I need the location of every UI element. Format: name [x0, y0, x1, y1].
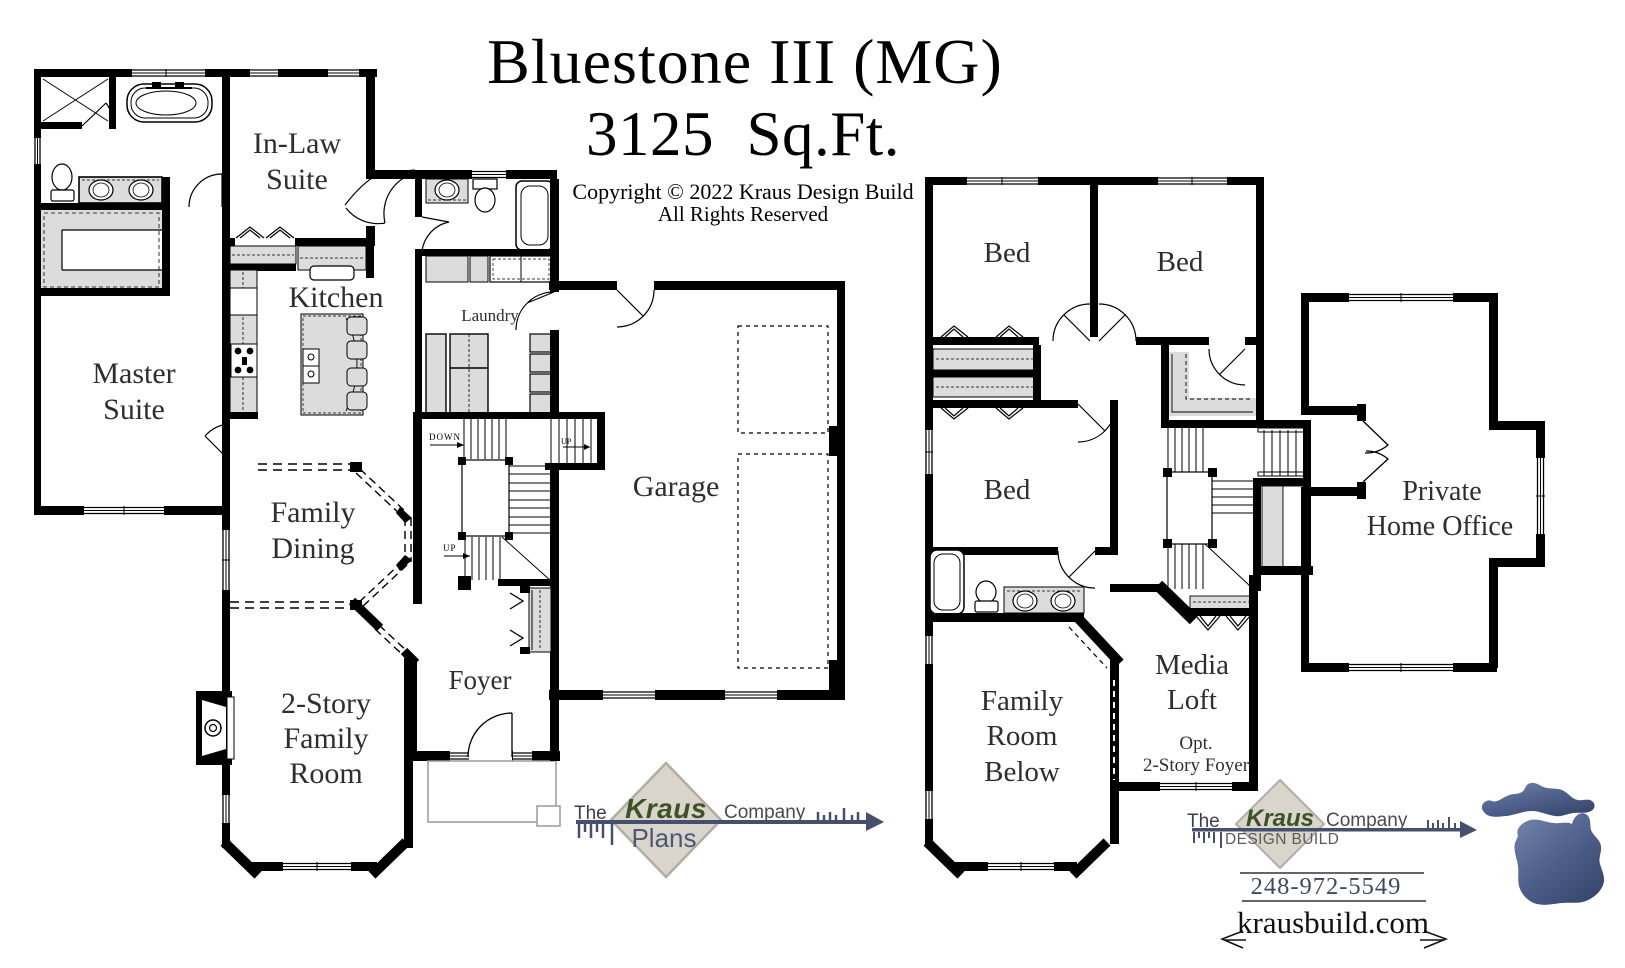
- svg-text:Company: Company: [1326, 810, 1408, 831]
- svg-text:3125 Sq.Ft.: 3125 Sq.Ft.: [586, 99, 900, 169]
- svg-text:Room: Room: [289, 757, 362, 790]
- svg-text:UP: UP: [561, 437, 572, 446]
- svg-text:Suite: Suite: [103, 393, 165, 426]
- svg-text:Room: Room: [987, 720, 1058, 752]
- svg-text:Loft: Loft: [1167, 684, 1217, 716]
- svg-text:Family: Family: [981, 685, 1064, 717]
- svg-text:Opt.: Opt.: [1179, 733, 1212, 754]
- svg-text:Dining: Dining: [271, 532, 354, 565]
- svg-text:UP: UP: [443, 543, 457, 553]
- svg-text:Suite: Suite: [266, 163, 328, 196]
- svg-text:248-972-5549: 248-972-5549: [1251, 873, 1402, 900]
- svg-text:Media: Media: [1155, 649, 1229, 681]
- svg-text:Bed: Bed: [984, 474, 1031, 506]
- svg-text:Foyer: Foyer: [449, 665, 512, 695]
- svg-text:Below: Below: [984, 756, 1060, 788]
- svg-text:Bluestone III (MG): Bluestone III (MG): [487, 26, 1003, 97]
- svg-text:Kraus: Kraus: [1246, 805, 1314, 832]
- svg-text:Copyright © 2022 Kraus Design: Copyright © 2022 Kraus Design Build: [572, 179, 913, 204]
- svg-text:Plans: Plans: [631, 823, 696, 853]
- svg-text:Garage: Garage: [633, 470, 720, 503]
- svg-text:Kraus: Kraus: [625, 793, 707, 824]
- svg-text:Master: Master: [92, 357, 175, 390]
- svg-text:DOWN: DOWN: [429, 432, 461, 442]
- svg-text:krausbuild.com: krausbuild.com: [1237, 905, 1429, 940]
- svg-text:Home Office: Home Office: [1367, 511, 1513, 542]
- svg-text:DESIGN BUILD: DESIGN BUILD: [1225, 831, 1339, 848]
- svg-text:Bed: Bed: [1157, 246, 1204, 278]
- svg-text:Private: Private: [1402, 476, 1481, 507]
- svg-text:Bed: Bed: [984, 237, 1031, 269]
- svg-text:2-Story Foyer: 2-Story Foyer: [1143, 755, 1250, 776]
- svg-text:Family: Family: [270, 496, 355, 529]
- svg-text:Laundry: Laundry: [461, 306, 519, 325]
- svg-text:Family: Family: [283, 722, 368, 755]
- svg-text:Company: Company: [724, 802, 806, 823]
- svg-text:2-Story: 2-Story: [281, 687, 371, 720]
- svg-text:Kitchen: Kitchen: [289, 281, 384, 314]
- svg-text:In-Law: In-Law: [253, 127, 342, 160]
- svg-text:All Rights Reserved: All Rights Reserved: [658, 202, 829, 226]
